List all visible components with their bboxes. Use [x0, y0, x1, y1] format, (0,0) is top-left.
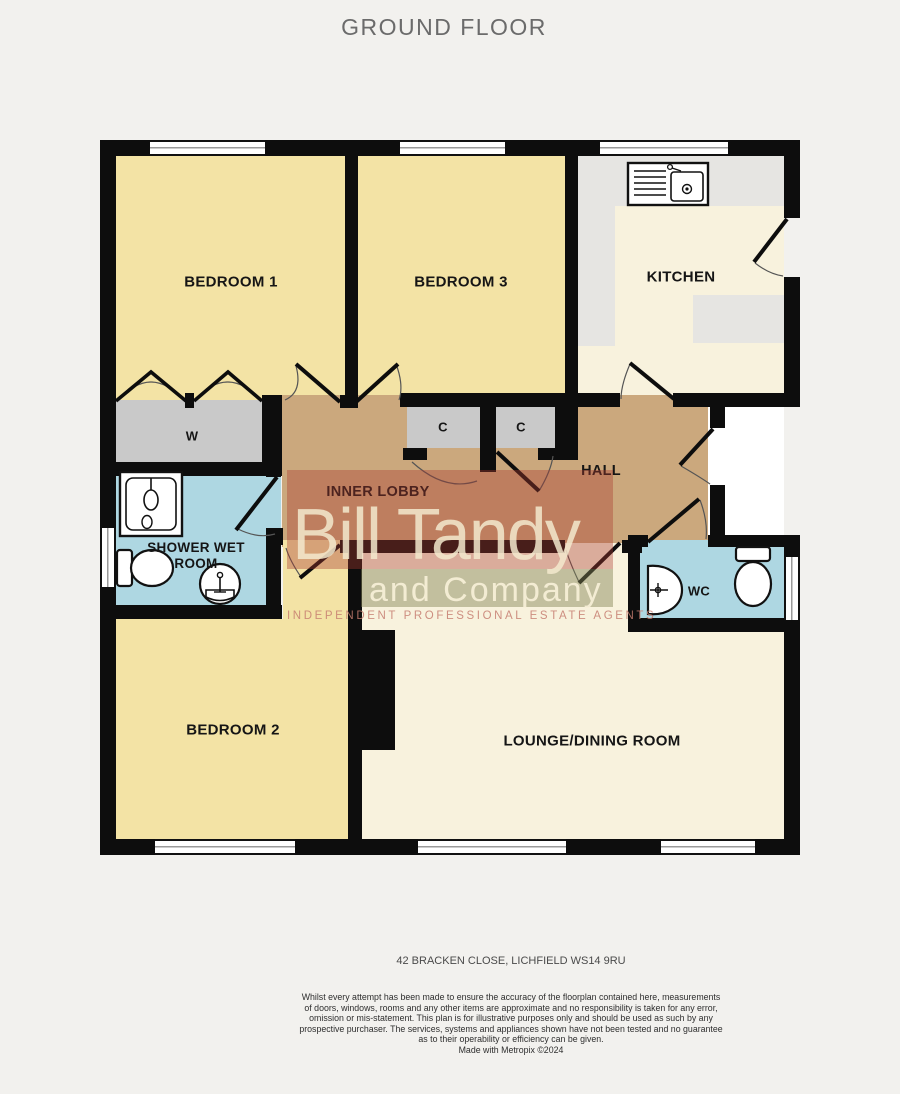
door-bedroom3	[356, 364, 401, 402]
basin-icon-wc	[648, 566, 682, 614]
label-shower-wet-room: SHOWER WET ROOM	[131, 540, 261, 572]
disclaimer-line: omission or mis-statement. This plan is …	[161, 1013, 861, 1024]
door-kitchen-hall	[621, 363, 674, 399]
kitchen-sink-icon	[628, 163, 708, 205]
label-bedroom1: BEDROOM 1	[184, 274, 278, 291]
door-kitchen-exterior	[754, 219, 787, 276]
label-wc: WC	[688, 584, 710, 599]
door-front-entrance	[680, 429, 713, 484]
label-bedroom2: BEDROOM 2	[186, 722, 280, 739]
label-bedroom3: BEDROOM 3	[414, 274, 508, 291]
label-kitchen: KITCHEN	[647, 269, 716, 286]
disclaimer-line: Whilst every attempt has been made to en…	[161, 992, 861, 1003]
disclaimer-line: prospective purchaser. The services, sys…	[161, 1024, 861, 1035]
property-address: 42 BRACKEN CLOSE, LICHFIELD WS14 9RU	[161, 955, 861, 967]
watermark-brand-name: Bill Tandy	[292, 494, 579, 576]
disclaimer-line: as to their operability or efficiency ca…	[161, 1034, 861, 1045]
watermark-tagline: INDEPENDENT PROFESSIONAL ESTATE AGENTS	[287, 610, 613, 622]
label-cupboard2: C	[516, 420, 526, 435]
disclaimer-line: of doors, windows, rooms and any other i…	[161, 1003, 861, 1014]
label-cupboard1: C	[438, 420, 448, 435]
label-wardrobe: W	[186, 429, 199, 444]
floorplan: BEDROOM 1 BEDROOM 3 KITCHEN W C C HALL I…	[0, 0, 900, 1094]
wardrobe-bifold-doors-icon	[116, 372, 262, 401]
metropix-credit: Made with Metropix ©2024	[161, 1045, 861, 1056]
shower-icon	[120, 472, 182, 536]
door-bedroom1	[285, 364, 340, 402]
door-shower-room	[236, 477, 277, 536]
door-wc	[648, 499, 706, 542]
disclaimer-text: Whilst every attempt has been made to en…	[161, 992, 861, 1056]
label-lounge-dining: LOUNGE/DINING ROOM	[503, 733, 680, 750]
watermark-brand-suffix: and Company	[369, 571, 603, 610]
toilet-icon-wc	[735, 547, 771, 606]
